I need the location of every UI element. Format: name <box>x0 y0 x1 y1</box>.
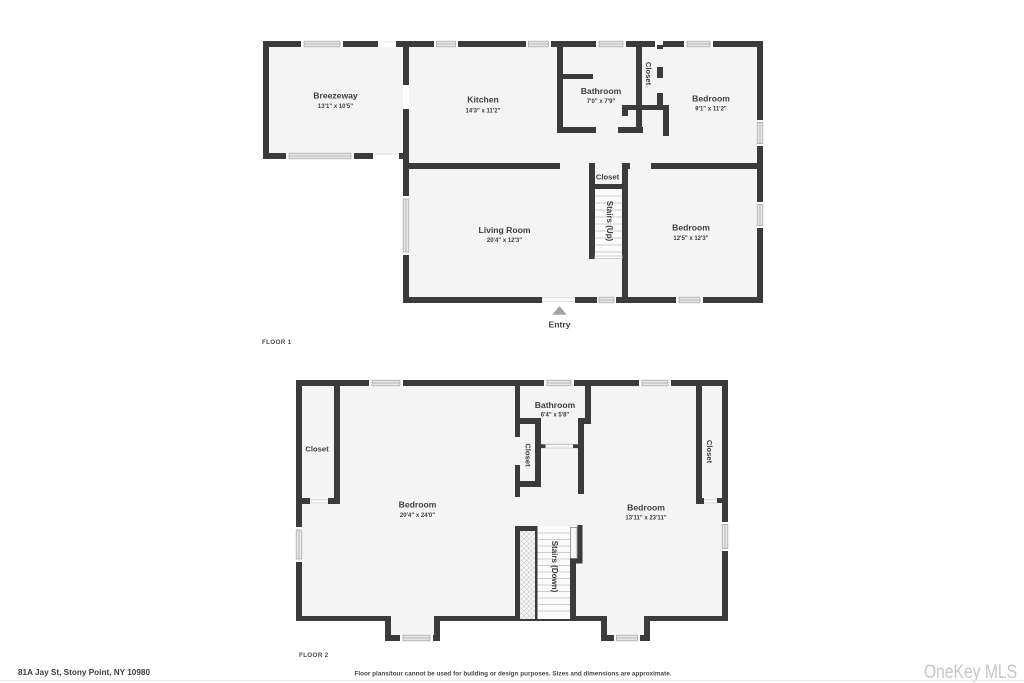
svg-text:Bedroom: Bedroom <box>692 94 730 104</box>
svg-text:20'4" x 12'3": 20'4" x 12'3" <box>487 238 522 244</box>
svg-text:Stairs (Down): Stairs (Down) <box>550 541 559 593</box>
svg-text:12'5" x 12'3": 12'5" x 12'3" <box>673 236 708 242</box>
svg-text:20'4" x 24'0": 20'4" x 24'0" <box>400 513 435 519</box>
svg-text:Breezeway: Breezeway <box>313 91 358 101</box>
svg-text:13'11" x 23'11": 13'11" x 23'11" <box>625 516 666 522</box>
svg-text:Bathroom: Bathroom <box>581 86 622 96</box>
svg-text:Bathroom: Bathroom <box>535 400 576 410</box>
svg-text:Closet: Closet <box>305 445 329 454</box>
svg-text:Closet: Closet <box>644 62 653 86</box>
svg-text:FLOOR 2: FLOOR 2 <box>299 652 329 659</box>
svg-text:Entry: Entry <box>549 320 571 330</box>
svg-text:OneKey MLS: OneKey MLS <box>924 662 1017 683</box>
svg-text:Floor plans/tour cannot be use: Floor plans/tour cannot be used for buil… <box>355 671 672 678</box>
svg-text:81A Jay St, Stony Point, NY 10: 81A Jay St, Stony Point, NY 10980 <box>18 667 150 677</box>
svg-text:Closet: Closet <box>524 443 533 467</box>
svg-text:Bedroom: Bedroom <box>627 503 665 513</box>
svg-text:13'1" x 10'5": 13'1" x 10'5" <box>318 104 353 110</box>
svg-text:Closet: Closet <box>705 440 714 464</box>
svg-text:Kitchen: Kitchen <box>467 95 499 105</box>
svg-text:Living Room: Living Room <box>478 225 530 235</box>
svg-text:9'1" x 11'2": 9'1" x 11'2" <box>695 107 727 113</box>
svg-text:6'4" x 5'8": 6'4" x 5'8" <box>541 413 570 419</box>
svg-text:Bedroom: Bedroom <box>672 223 710 233</box>
svg-text:Stairs (Up): Stairs (Up) <box>605 201 614 242</box>
svg-text:14'3" x 11'2": 14'3" x 11'2" <box>466 109 501 115</box>
svg-text:Bedroom: Bedroom <box>399 500 437 510</box>
svg-text:Closet: Closet <box>596 173 620 182</box>
svg-text:7'0" x 7'9": 7'0" x 7'9" <box>587 99 616 105</box>
svg-text:FLOOR 1: FLOOR 1 <box>262 339 292 346</box>
